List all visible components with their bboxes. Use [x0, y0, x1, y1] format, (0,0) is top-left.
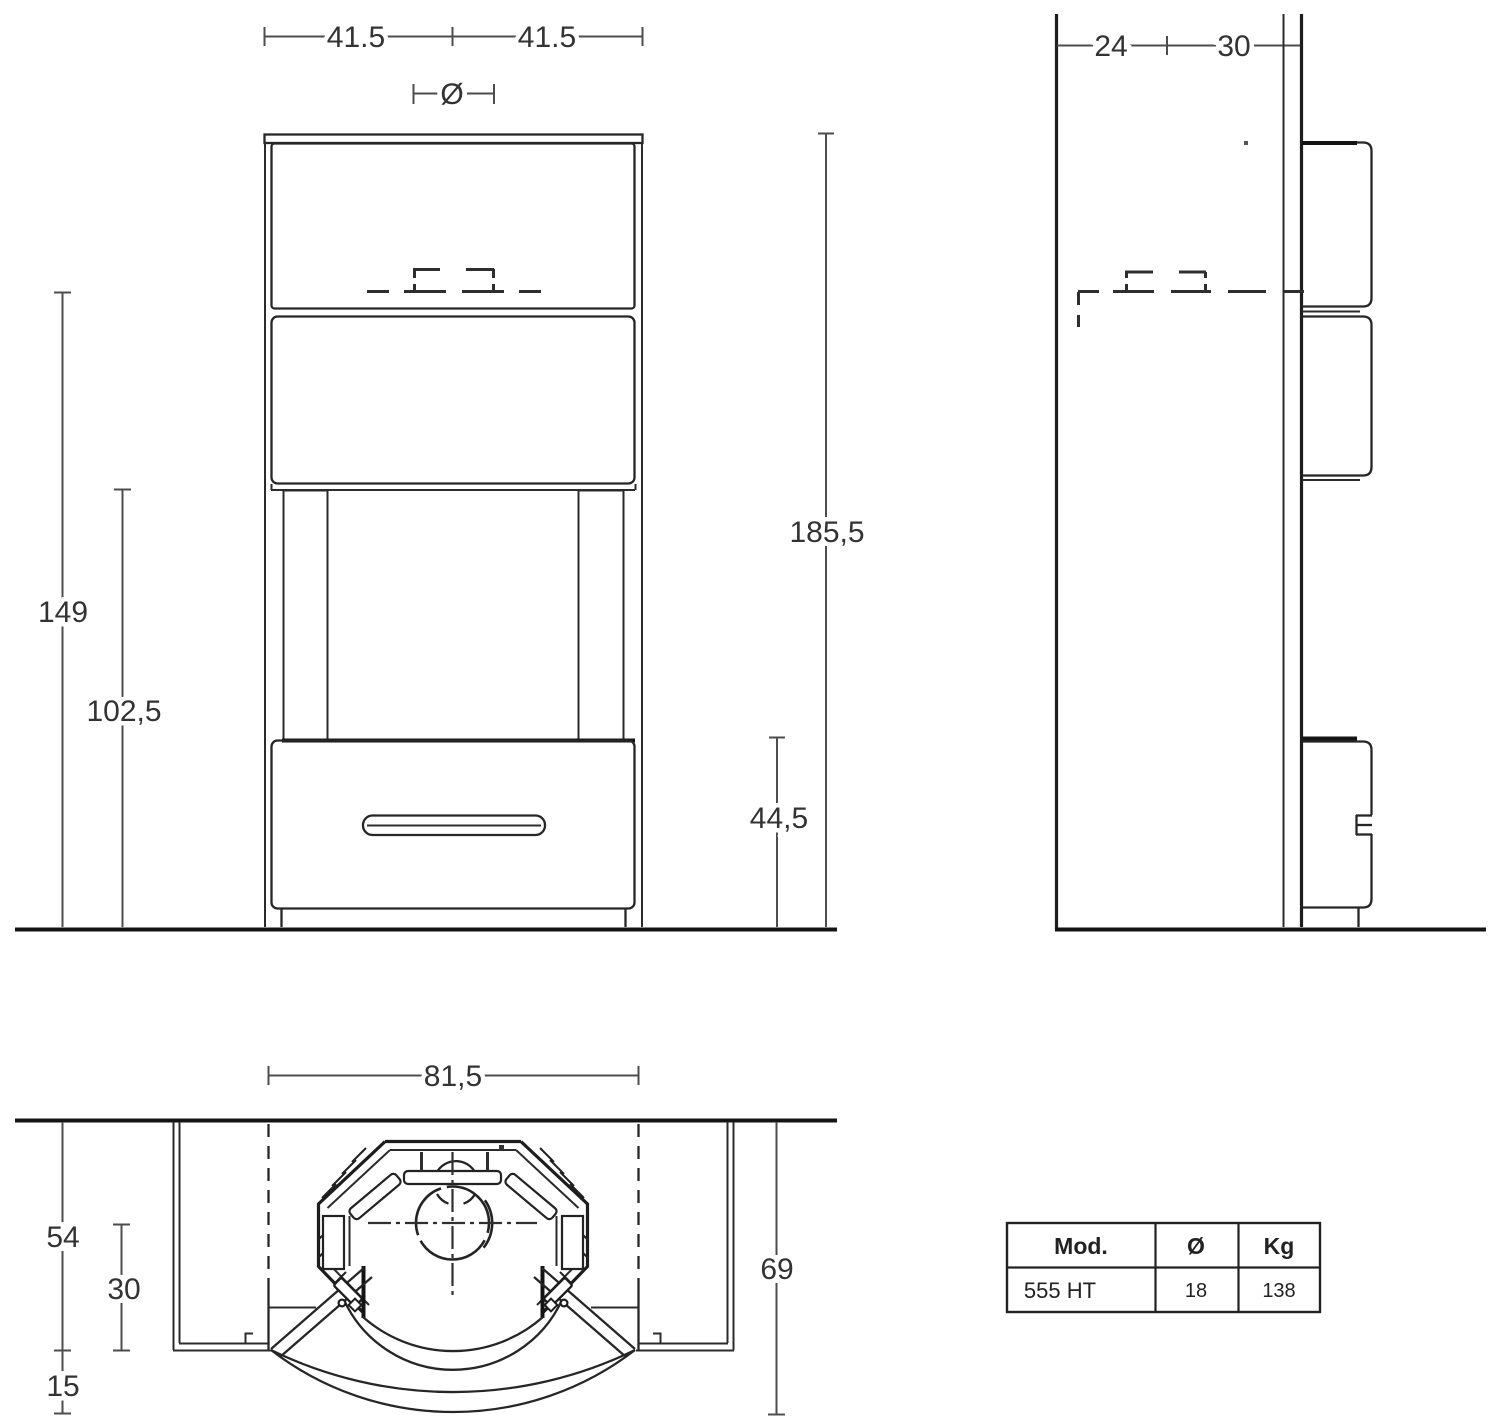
svg-text:Ø: Ø	[1187, 1233, 1205, 1259]
svg-text:555 HT: 555 HT	[1024, 1278, 1096, 1303]
svg-text:Ø: Ø	[440, 78, 463, 111]
svg-text:44,5: 44,5	[750, 802, 808, 835]
svg-text:24: 24	[1094, 30, 1127, 63]
svg-text:15: 15	[46, 1370, 79, 1403]
svg-text:102,5: 102,5	[86, 695, 161, 728]
svg-text:69: 69	[760, 1253, 793, 1286]
svg-text:138: 138	[1262, 1280, 1295, 1302]
svg-text:185,5: 185,5	[789, 516, 864, 549]
svg-text:41.5: 41.5	[518, 21, 576, 54]
svg-text:30: 30	[107, 1273, 140, 1306]
svg-text:81,5: 81,5	[424, 1060, 482, 1093]
svg-text:Kg: Kg	[1264, 1233, 1295, 1259]
svg-text:54: 54	[46, 1221, 79, 1254]
svg-text:41.5: 41.5	[327, 21, 385, 54]
svg-text:30: 30	[1217, 30, 1250, 63]
svg-text:149: 149	[38, 596, 88, 629]
svg-text:18: 18	[1185, 1280, 1207, 1302]
svg-text:Mod.: Mod.	[1054, 1233, 1108, 1259]
